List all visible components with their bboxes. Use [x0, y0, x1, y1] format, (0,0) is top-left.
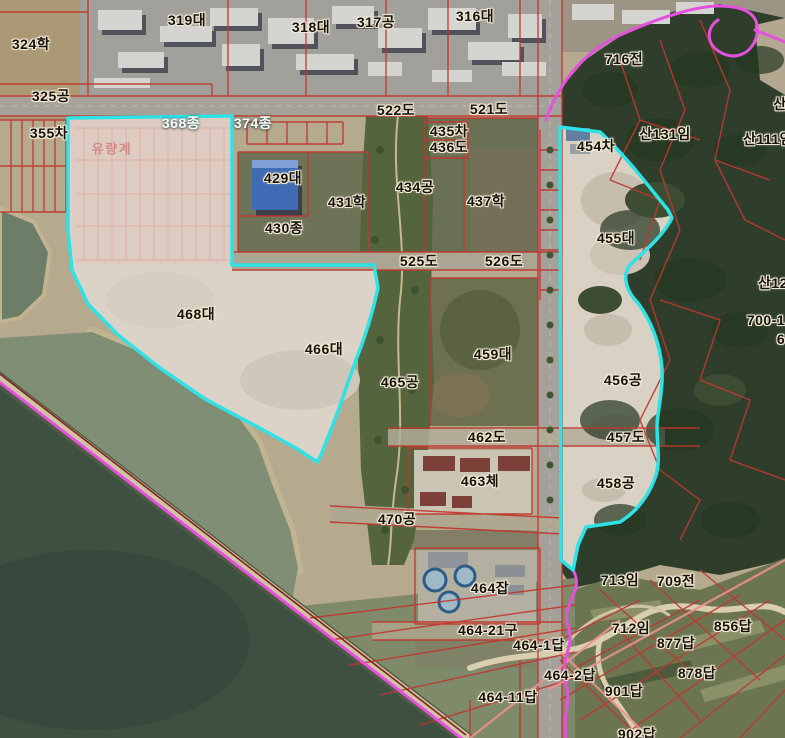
parcel-label: 901답: [605, 684, 643, 698]
parcel-label: 457도: [607, 430, 645, 444]
parcel-label: 324학: [12, 37, 50, 51]
parcel-label: 713임: [601, 573, 639, 587]
parcel-label: 466대: [305, 342, 343, 356]
parcel-label: 430종: [265, 221, 303, 235]
parcel-label: 521도: [470, 102, 508, 116]
parcel-label: 464-1답: [513, 638, 565, 652]
parcel-label: 산: [773, 97, 785, 111]
parcel-label: 458공: [597, 476, 635, 490]
parcel-label: 456공: [604, 373, 642, 387]
parcel-label: 318대: [292, 20, 330, 34]
parcel-label: 산131임: [639, 127, 691, 141]
parcel-label: 902답: [618, 727, 656, 738]
parcel-label: 459대: [474, 347, 512, 361]
parcel-label: 709전: [657, 574, 695, 588]
parcel-label: 316대: [456, 9, 494, 23]
parcel-label: 368종: [162, 116, 200, 130]
parcel-label: 464-2답: [544, 668, 596, 682]
parcel-label: 878답: [678, 666, 716, 680]
parcel-label: 436도: [430, 140, 468, 154]
parcel-label: 산111임: [743, 132, 785, 146]
parcel-label: 462도: [468, 430, 506, 444]
parcel-label: 464잡: [471, 581, 509, 595]
parcel-label: 317공: [357, 15, 395, 29]
parcel-label: 700-1: [747, 313, 785, 327]
parcel-label: 454차: [577, 139, 615, 153]
parcel-label: 431학: [328, 195, 366, 209]
parcel-label: 877답: [657, 636, 695, 650]
parcel-label: 산12: [758, 276, 785, 290]
parcel-label-layer: 324학319대318대317공316대325공355차368종374종유량계5…: [0, 0, 785, 738]
parcel-label: 6: [777, 332, 785, 346]
parcel-label: 470공: [378, 512, 416, 526]
parcel-label: 525도: [400, 254, 438, 268]
parcel-label: 434공: [396, 180, 434, 194]
parcel-label: 325공: [32, 89, 70, 103]
parcel-label: 463체: [461, 474, 499, 488]
parcel-label: 유량계: [92, 143, 132, 156]
parcel-label: 468대: [177, 307, 215, 321]
parcel-label: 429대: [264, 171, 302, 185]
parcel-label: 464-21구: [458, 623, 518, 637]
parcel-label: 716전: [605, 52, 643, 66]
parcel-label: 464-11답: [478, 690, 537, 704]
parcel-label: 526도: [485, 254, 523, 268]
parcel-label: 437학: [467, 194, 505, 208]
parcel-label: 374종: [234, 116, 272, 130]
parcel-label: 712임: [612, 621, 650, 635]
map-canvas[interactable]: 324학319대318대317공316대325공355차368종374종유량계5…: [0, 0, 785, 738]
parcel-label: 355차: [30, 126, 68, 140]
parcel-label: 465공: [381, 375, 419, 389]
parcel-label: 522도: [377, 103, 415, 117]
parcel-label: 435차: [430, 124, 468, 138]
parcel-label: 319대: [168, 13, 206, 27]
parcel-label: 856답: [714, 619, 752, 633]
parcel-label: 455대: [597, 231, 635, 245]
